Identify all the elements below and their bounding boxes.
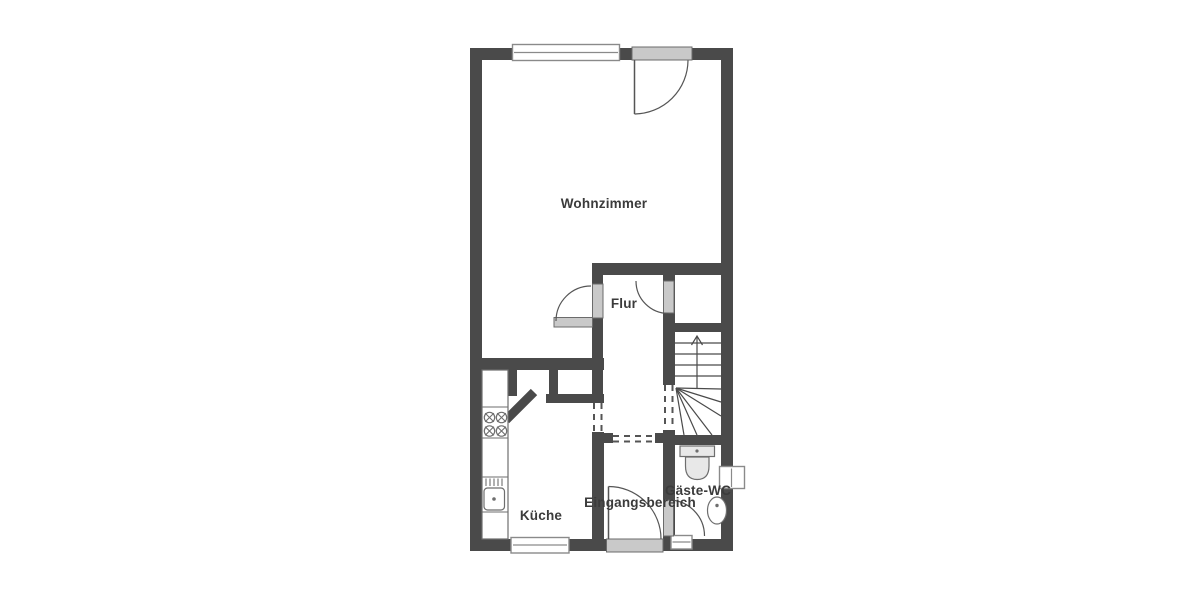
floor-plan-canvas: Wohnzimmer Flur Küche Eingangsbereich Gä… (0, 0, 1200, 600)
floor-plan: Wohnzimmer Flur Küche Eingangsbereich Gä… (0, 0, 1200, 600)
stairs-up-arrow-icon (675, 336, 721, 435)
wall-niche-1 (508, 370, 517, 396)
room-label-gaeste-wc: Gäste-WC (665, 483, 731, 498)
countertop-icon (482, 370, 508, 539)
wall-niche-bottom (546, 394, 604, 403)
kitchen-fixtures (482, 370, 508, 539)
wall-eingang-west (592, 432, 604, 544)
room-label-kueche: Küche (520, 508, 563, 523)
wall-wohnzimmer-kueche (470, 358, 604, 370)
wall-left (470, 48, 482, 551)
door-landing-icon (636, 281, 674, 314)
washbasin-icon (708, 497, 727, 524)
wall-stub-west (604, 433, 613, 443)
toilet-icon (680, 446, 715, 480)
wall-landing-stairs (663, 323, 721, 332)
wall-niche-2 (549, 370, 558, 396)
wall-stairs-wc (663, 435, 721, 445)
room-label-wohnzimmer: Wohnzimmer (561, 196, 648, 211)
wall-wohnzimmer-flur (592, 263, 733, 275)
wall-kueche-diagonal (506, 392, 534, 420)
wall-stub-east (655, 433, 663, 443)
room-label-flur: Flur (611, 296, 638, 311)
door-wohnzimmer-icon (632, 47, 692, 114)
